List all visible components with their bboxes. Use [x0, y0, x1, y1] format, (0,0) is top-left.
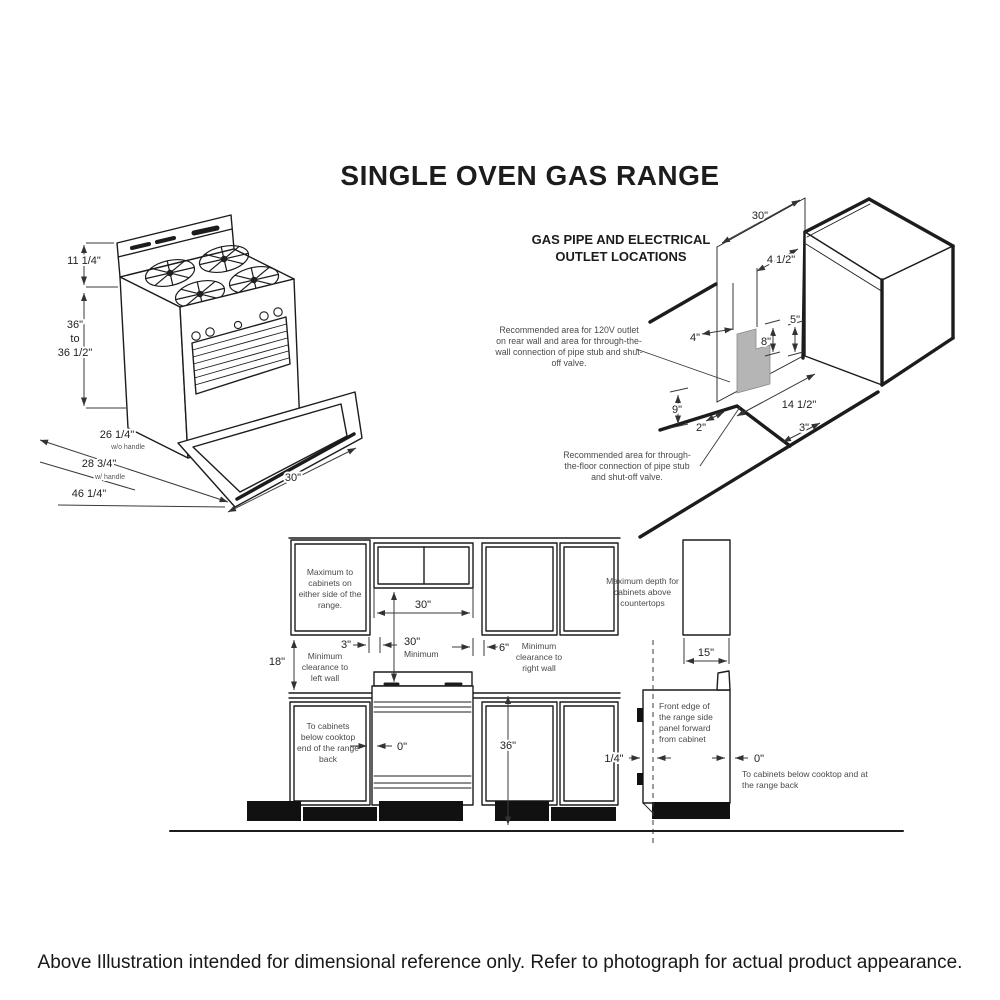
- note-right-wall-clearance: Minimum clearance to right wall: [511, 641, 567, 674]
- diagram-linework: 11 1/4" 36" to 36 1/2" 26 1/4" w/o handl…: [0, 0, 1000, 1000]
- dim-backsplash-height: 11 1/4": [67, 255, 101, 267]
- dim-depth-no-handle: 26 1/4": [100, 429, 135, 441]
- dim-left-gap: 3": [341, 639, 351, 651]
- gas-pipe-heading-line1: GAS PIPE AND ELECTRICAL: [505, 231, 737, 248]
- note-through-floor: Recommended area for through-the-floor c…: [557, 450, 697, 483]
- dim-depth-with-handle: 28 3/4": [82, 458, 117, 470]
- dim-3: 3": [799, 422, 809, 434]
- spec-sheet: 11 1/4" 36" to 36 1/2" 26 1/4" w/o handl…: [0, 0, 1000, 1000]
- dim-cabinet-height: 18": [269, 656, 285, 668]
- dim-counter-height: 36": [500, 740, 516, 752]
- dim-zero-left: 0": [397, 741, 407, 753]
- dim-9: 9": [672, 404, 682, 416]
- dim-14-5: 14 1/2": [782, 399, 817, 411]
- dim-4: 4": [690, 332, 700, 344]
- range-isometric-drawing: 11 1/4" 36" to 36 1/2" 26 1/4" w/o handl…: [40, 215, 362, 512]
- dim-min-above-cooktop-label: Minimum: [404, 649, 438, 659]
- dim-zero-right: 0": [754, 753, 764, 765]
- dim-range-height-2: to: [70, 333, 79, 345]
- note-left-wall-clearance: Minimum clearance to left wall: [301, 651, 349, 684]
- gas-pipe-heading: GAS PIPE AND ELECTRICAL OUTLET LOCATIONS: [505, 231, 737, 265]
- dim-min-above-cooktop: 30": [404, 636, 420, 648]
- dim-quarter-inch: 1/4": [604, 753, 623, 765]
- note-120v-outlet: Recommended area for 120V outlet on rear…: [494, 325, 644, 369]
- page-title: SINGLE OVEN GAS RANGE: [250, 160, 810, 192]
- dim-4-5: 4 1/2": [767, 254, 795, 266]
- dim-cabinet-depth: 15": [698, 647, 714, 659]
- note-side-cabinets: Maximum to cabinets on either side of th…: [297, 567, 363, 611]
- note-front-edge: Front edge of the range side panel forwa…: [659, 701, 719, 745]
- dim-right-gap: 6": [499, 642, 509, 654]
- note-cabinets-below-right: To cabinets below cooktop and at the ran…: [742, 769, 880, 791]
- dim-range-height-1: 36": [67, 319, 83, 331]
- note-cabinets-below-left: To cabinets below cooktop end of the ran…: [296, 721, 360, 765]
- dim-alcove-width: 30": [415, 599, 431, 611]
- dim-5: 5": [790, 314, 800, 326]
- dim-range-width: 30": [285, 472, 301, 484]
- dim-depth-door-open: 46 1/4": [72, 488, 107, 500]
- dim-2: 2": [696, 422, 706, 434]
- note-max-cabinet-depth: Maximum depth for cabinets above counter…: [605, 576, 680, 609]
- dim-depth-no-handle-note: w/o handle: [110, 444, 145, 451]
- dim-8: 8": [761, 336, 771, 348]
- dim-depth-with-handle-note: w/ handle: [94, 474, 125, 481]
- dim-range-height-3: 36 1/2": [58, 347, 93, 359]
- dim-wall-width: 30": [752, 210, 768, 222]
- footer-caption: Above Illustration intended for dimensio…: [0, 952, 1000, 974]
- gas-pipe-heading-line2: OUTLET LOCATIONS: [505, 248, 737, 265]
